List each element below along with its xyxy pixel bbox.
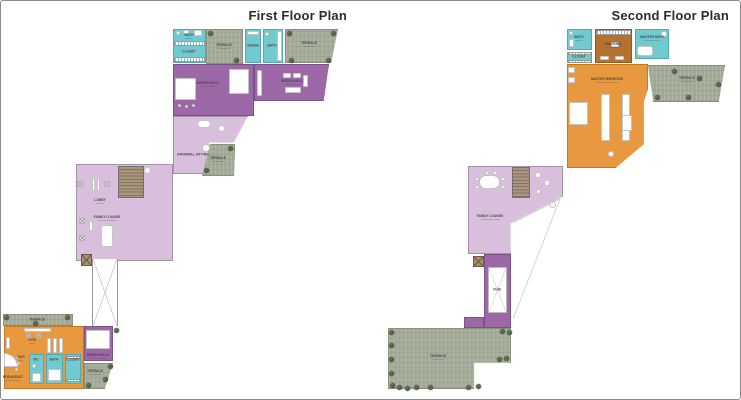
area-text [218,48,229,49]
corridor-walls [464,317,484,328]
first-floor-title: First Floor Plan [248,8,347,23]
sofa [622,115,632,131]
shelf [24,328,51,332]
room-label-dressing: DRESSING [604,43,621,48]
room-label-sauna: SAUNA [247,44,259,48]
room-label-master-bath: MASTER BATH [640,36,664,41]
second-floor-title: Second Floor Plan [611,8,729,23]
armchair [218,125,225,132]
area-text [186,38,192,39]
desk [303,75,308,87]
stool [178,104,181,107]
tree-icon [204,168,209,173]
tree-icon [716,82,721,87]
bench [600,56,609,60]
wardrobe [601,94,610,141]
room-label-bedroom-04: BEDROOM 04 [87,354,109,359]
bed [229,69,249,94]
room-label-bath-lower: BATH [50,358,59,362]
area-text [90,358,106,359]
stool [192,104,195,107]
desk [568,77,575,83]
bed [86,330,110,349]
room-label-sf-family-lounge: FAMILY LOUNGE [477,215,504,220]
shower [32,373,41,382]
area-text [607,47,619,48]
room-label-void: VOID [493,288,501,292]
bathtub [637,46,653,56]
chair-icon [79,235,85,241]
tree-icon [414,385,419,390]
tree-icon [389,330,394,335]
area-text [212,161,223,162]
tree-icon [500,329,505,334]
area-text [29,343,34,344]
armchair [535,172,541,178]
room-label-bedroom-03: BEDROOM 03 [281,80,303,85]
armchair [549,201,556,208]
chair-icon [36,333,41,338]
area-text [432,359,443,360]
floor-plan-sheet: First Floor Plan [0,0,741,400]
staircase [512,167,530,198]
room-label-bar: BAR [17,356,24,361]
room-label-closet-lower: CLOSET [66,358,79,362]
tree-icon [234,58,239,63]
area-text [681,81,692,82]
tree-icon [114,328,119,333]
hall-corridor [92,259,118,326]
seat [283,73,291,78]
room-label-sf-closet: CLOSET [572,55,585,59]
gym-equipment [47,338,51,353]
desk [568,67,575,73]
tree-icon [507,330,512,335]
tree-icon [504,356,509,361]
room-label-wc: WC [33,358,39,362]
closet-shelving [568,60,591,63]
area-text [97,220,116,221]
room-label-terrace-mid: TERRACE [210,157,226,162]
chair-icon [501,177,505,181]
seat [293,73,301,78]
room-label-bedroom-02: BEDROOM 02 [197,82,219,87]
chair-icon [77,181,83,187]
shelf [6,337,10,349]
tree-icon [86,383,91,388]
armchair [544,180,550,186]
staircase [118,166,144,198]
toilet [176,31,180,35]
room-label-closet-top: CLOSET [182,50,195,54]
room-label-bath-mid: BATH [268,44,277,48]
tree-icon [228,146,233,151]
room-label-family-lounge: FAMILY LOUNGE [94,216,121,221]
tree-icon [390,383,395,388]
sink [569,39,574,47]
lift [81,254,92,266]
tree-icon [397,385,402,390]
tree-icon [287,31,292,36]
shower [277,31,282,61]
chair-icon [501,185,505,189]
area-text [480,219,499,220]
tree-icon [65,315,70,320]
toilet [265,32,269,36]
daybed [101,225,113,247]
bathtub [194,30,202,36]
closet-shelving [174,57,205,62]
chair-icon [475,177,479,181]
room-sf-terrace-main [388,328,511,389]
armchair [608,151,614,157]
armchair [144,167,151,174]
closet-shelving [174,41,205,46]
room-label-lobby: LOBBY [94,199,106,204]
tree-icon [476,384,481,389]
area-text [89,374,100,375]
room-label-master-bedroom: MASTER BEDROOM [591,78,623,83]
tree-icon [289,58,294,63]
bed [175,78,196,100]
area-text [6,380,21,381]
tree-icon [428,385,433,390]
sofa [197,120,211,128]
room-label-bath-top: BATH [185,34,194,39]
bed [569,102,588,125]
chair-icon [493,171,497,175]
stool [185,105,188,108]
tree-icon [405,386,410,391]
chair-icon [79,218,85,224]
area-text [576,40,582,41]
wardrobe [257,70,262,96]
bathtub [48,369,61,381]
table [92,178,95,191]
sofa [285,87,301,93]
tree-icon [103,377,108,382]
stool [15,368,18,371]
tree-icon [331,31,336,36]
room-label-terrace-top-right: TERRACE [301,42,317,47]
area-text [595,82,618,83]
tree-icon [697,76,702,81]
area-text [303,46,314,47]
tree-icon [4,315,9,320]
toilet [569,31,573,35]
tree-icon [672,69,677,74]
table [89,221,93,231]
room-label-terrace-top: TERRACE [216,44,232,49]
tree-icon [655,95,660,100]
sauna-bench [247,31,259,35]
toilet [32,364,36,368]
tree-icon [389,343,394,348]
tree-icon [686,95,691,100]
chair-icon [26,333,31,338]
tree-icon [108,364,113,369]
area-text [643,40,660,41]
table [97,178,100,191]
area-text [18,360,23,361]
room-label-informal-sitting: INFORMAL SITTING [177,153,208,157]
room-label-breakfast: BREAKFAST [3,376,23,381]
tree-icon [466,385,471,390]
room-label-gym: GYM [28,339,36,344]
dining-table [479,175,500,189]
chair-icon [475,185,479,189]
tree-icon [389,371,394,376]
lift [473,256,484,267]
gym-equipment [53,338,57,353]
tree-icon [208,31,213,36]
area-text [284,84,300,85]
closet-shelving [66,379,80,382]
armchair [536,189,541,194]
bench [615,56,624,60]
armchair [202,144,210,152]
room-label-terrace-left: TERRACE [29,318,45,322]
room-label-sf-terrace-main: TERRACE [430,355,446,360]
gym-equipment [59,338,63,353]
chair-icon [104,181,110,187]
room-label-sf-bath: BATH [575,36,584,41]
tree-icon [497,357,502,362]
tree-icon [389,357,394,362]
stool [17,362,20,365]
tree-icon [326,58,331,63]
room-label-terrace-bottom: TERRACE [87,370,103,375]
wardrobe-rail [596,30,631,35]
area-text [200,86,216,87]
chair-icon [485,171,489,175]
room-label-sf-terrace-right: TERRACE [679,77,695,82]
area-text [96,203,104,204]
